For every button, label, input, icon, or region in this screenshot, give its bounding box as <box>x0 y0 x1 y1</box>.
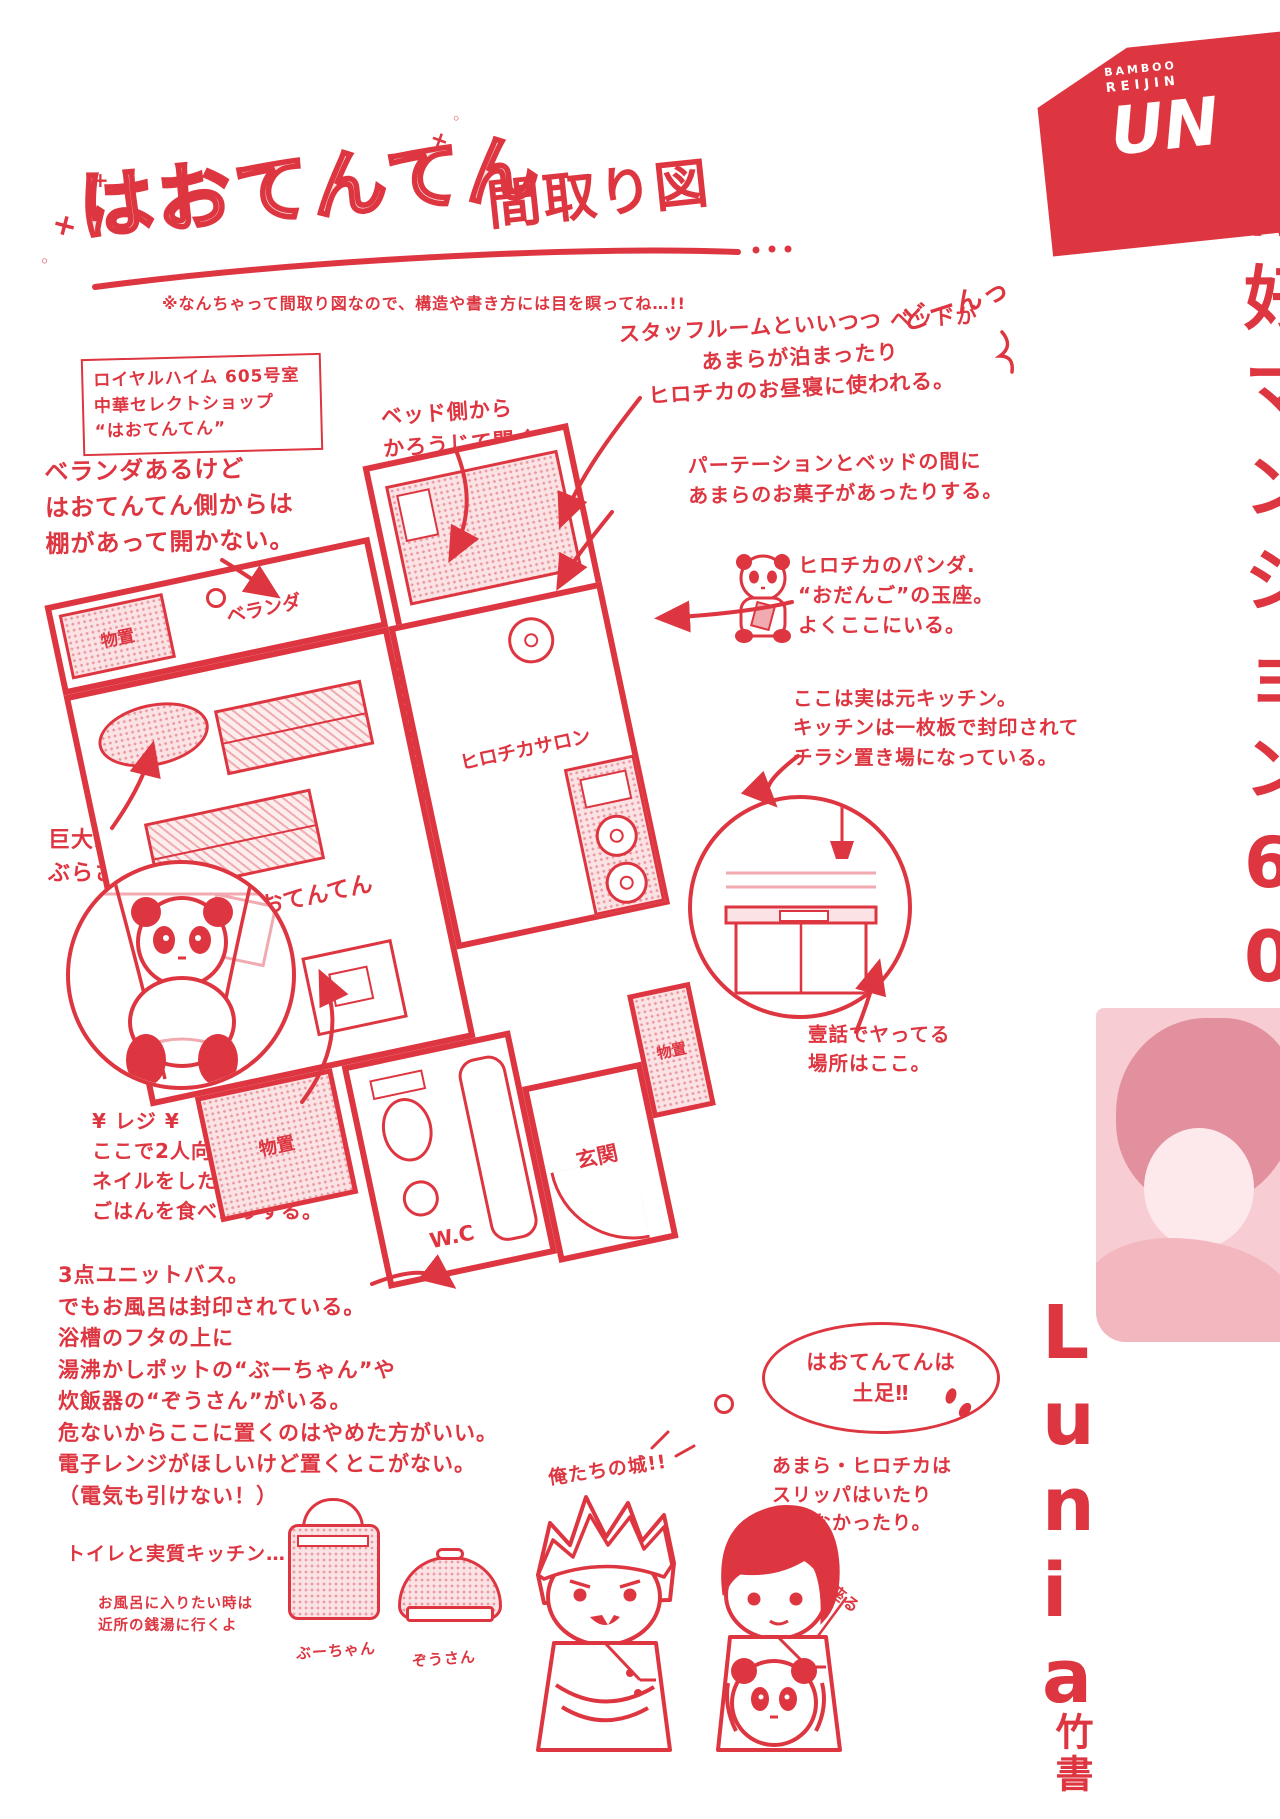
stove-burner <box>592 811 642 861</box>
spine-romaji-title: L u n i a <box>1042 1290 1132 1720</box>
storage-top-label: 物置 <box>98 620 136 652</box>
spine-title-char: マ <box>1244 346 1280 440</box>
spine-title-char: ン <box>1244 440 1280 534</box>
logo-line-un: UN <box>1107 81 1280 165</box>
sparkle-icon: + <box>48 205 81 245</box>
address-box: ロイヤルハイム 605号室 中華セレクトショップ “はおてんてん” <box>81 353 323 456</box>
annotation-odango: ヒロチカのパンダ. “おだんご”の玉座。 よくここにいる。 <box>798 550 994 640</box>
kitchen-sink <box>579 769 632 808</box>
veranda-label: ベランダ <box>224 587 304 629</box>
page-title: はおてんてん <box>74 108 546 255</box>
panda-seat <box>504 613 559 668</box>
detail-circle <box>714 1394 734 1414</box>
spine-title-char: 好 <box>1244 252 1280 346</box>
pot-body <box>288 1524 380 1620</box>
kitchen-closeup-drawing <box>692 799 912 1019</box>
annotation-sento: お風呂に入りたい時は 近所の銭湯に行くよ <box>98 1594 253 1638</box>
spine-romaji-char: u <box>1042 1376 1132 1462</box>
publisher-mark: 竹書 <box>1044 1712 1099 1796</box>
spine-title-char: ョ <box>1244 628 1280 722</box>
spine-title-char: ン <box>1244 722 1280 816</box>
doon-squiggle <box>1000 332 1012 372</box>
annotation-toilet-kitchen: トイレと実質キッチン… <box>66 1540 286 1569</box>
sealed-kitchen-counter <box>564 754 666 916</box>
panda-callout-circle <box>66 860 296 1090</box>
pot-label: ぶーちゃん <box>295 1637 376 1665</box>
wc-label: W.C <box>427 1220 476 1253</box>
sink <box>399 1177 442 1220</box>
pot-illustration <box>288 1498 380 1628</box>
spine-vertical-title: 你 好 マ ン シ ョ ン 6 0 5 <box>1244 158 1280 1098</box>
shelf-unit-a <box>214 680 374 776</box>
spine-romaji-char: a <box>1042 1634 1132 1720</box>
annotation-ex-kitchen: ここは実は元キッチン。 キッチンは一枚板で封印されて チラシ置き場になっている。 <box>793 684 1079 772</box>
spine-romaji-char: i <box>1042 1548 1132 1634</box>
toilet-bowl <box>376 1093 438 1166</box>
annotation-episode1: 壹話でヤってる 場所はここ。 <box>808 1020 951 1079</box>
barefoot-cloud-bubble: はおてんてんは 土足‼ <box>762 1322 1000 1434</box>
bathtub <box>455 1052 541 1244</box>
toilet-tank <box>369 1069 426 1100</box>
storage-left-label: 物置 <box>256 1129 297 1162</box>
room-wc: W.C <box>342 1030 558 1289</box>
sparkle-icon: ◦ <box>452 112 460 127</box>
pillow <box>396 488 439 542</box>
manga-floorplan-page: はおてんてん 間取り図 ※なんちゃって間取り図なので、構造や書き方には目を瞑って… <box>0 0 1280 1819</box>
spine-title-char: 你 <box>1244 158 1280 252</box>
magazine-logo: BAMBOO REIJIN UN <box>1032 31 1280 256</box>
character-right <box>718 1506 840 1750</box>
annotation-partition: パーテーションとベッドの間に あまらのお菓子があったりする。 <box>688 445 1004 510</box>
stove-burner <box>602 858 652 908</box>
spine-romaji-char: n <box>1042 1462 1132 1548</box>
title-underline <box>95 251 738 287</box>
register-counter <box>301 939 408 1036</box>
sparkle-icon: + <box>92 168 109 192</box>
detail-circle <box>206 588 226 608</box>
spine-title-char: シ <box>1244 534 1280 628</box>
door-swing-arc <box>550 1155 650 1255</box>
title-disclaimer-note: ※なんちゃって間取り図なので、構造や書き方には目を瞑ってね…!! <box>162 292 686 316</box>
cooker-handle <box>436 1548 464 1560</box>
storage-right-label: 物置 <box>655 1037 689 1064</box>
storage-top: 物置 <box>59 593 176 680</box>
spine-title-char: 0 <box>1244 910 1280 1004</box>
sparkle-icon: ◦ <box>40 254 49 270</box>
annotation-barefoot: はおてんてんは 土足‼ <box>806 1347 955 1409</box>
spine-romaji-char: L <box>1042 1290 1132 1376</box>
odango-panda-icon <box>726 548 800 644</box>
bed <box>385 450 583 606</box>
character-left <box>538 1497 674 1750</box>
kitchen-callout-circle <box>688 795 912 1019</box>
characters-illustration <box>478 1445 898 1815</box>
cooker-label: ぞうさん <box>411 1646 476 1673</box>
storage-left-room: 物置 <box>195 1068 359 1222</box>
rug <box>92 693 214 777</box>
register-machine <box>328 965 374 1007</box>
spine-title-char: 6 <box>1244 816 1280 910</box>
photo-face-shape <box>1144 1128 1254 1248</box>
hanging-panda-drawing <box>70 864 292 1086</box>
